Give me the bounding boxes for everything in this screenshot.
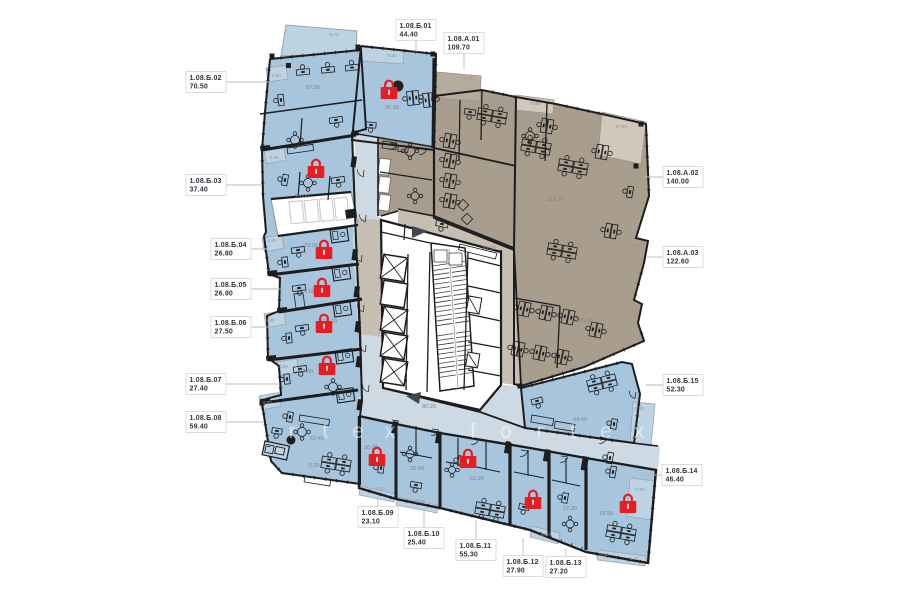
svg-text:1.08.Б.09: 1.08.Б.09 (362, 510, 394, 517)
svg-text:140.00: 140.00 (667, 179, 690, 186)
svg-text:27.00: 27.00 (299, 369, 313, 375)
svg-text:27.50: 27.50 (215, 329, 234, 336)
svg-text:1.08.Б.12: 1.08.Б.12 (507, 559, 539, 566)
svg-text:8.80: 8.80 (530, 101, 540, 107)
svg-text:26.80: 26.80 (215, 251, 234, 258)
svg-text:23.10: 23.10 (362, 519, 381, 526)
svg-text:x: x (385, 420, 396, 443)
svg-text:1.08.Б.15: 1.08.Б.15 (667, 378, 699, 385)
svg-text:t: t (570, 420, 576, 443)
svg-text:x: x (634, 420, 645, 443)
svg-text:1.08.Б.08: 1.08.Б.08 (190, 415, 222, 422)
svg-text:8.70: 8.70 (463, 76, 473, 82)
svg-text:3.10: 3.10 (375, 486, 385, 492)
svg-text:52.30: 52.30 (667, 387, 686, 394)
svg-text:24.60: 24.60 (301, 289, 315, 295)
svg-text:3.80: 3.80 (271, 73, 281, 79)
svg-text:1.08.А.03: 1.08.А.03 (667, 250, 699, 257)
svg-text:25.40: 25.40 (410, 466, 424, 472)
svg-text:3.10: 3.10 (599, 552, 609, 558)
svg-text:1.08.Б.07: 1.08.Б.07 (190, 377, 222, 384)
svg-text:1.08.Б.05: 1.08.Б.05 (215, 282, 247, 289)
svg-text:59.40: 59.40 (190, 424, 209, 431)
svg-text:25.40: 25.40 (408, 540, 427, 547)
svg-text:101.00: 101.00 (444, 180, 461, 186)
svg-text:26.90: 26.90 (215, 291, 234, 298)
svg-text:35.60: 35.60 (385, 105, 399, 111)
svg-text:52.20: 52.20 (470, 476, 484, 482)
svg-text:8.30: 8.30 (628, 313, 638, 319)
svg-text:3.10: 3.10 (540, 532, 550, 538)
svg-text:f: f (470, 420, 476, 443)
svg-text:3.80: 3.80 (278, 364, 288, 370)
svg-text:o: o (252, 420, 264, 443)
svg-text:57.00: 57.00 (306, 85, 320, 91)
svg-text:1.08.Б.14: 1.08.Б.14 (666, 468, 698, 475)
svg-text:1.08.Б.02: 1.08.Б.02 (190, 75, 222, 82)
svg-text:3.80: 3.80 (265, 318, 275, 324)
svg-text:r: r (537, 420, 544, 443)
svg-text:46.40: 46.40 (666, 477, 685, 484)
svg-text:52.40: 52.40 (310, 436, 324, 442)
svg-text:27.90: 27.90 (507, 568, 526, 575)
svg-text:55.30: 55.30 (460, 552, 479, 559)
svg-text:9.70: 9.70 (329, 32, 339, 38)
svg-text:113.30: 113.30 (547, 197, 564, 203)
svg-text:27.20: 27.20 (550, 569, 569, 576)
svg-text:1.08.А.02: 1.08.А.02 (667, 170, 699, 177)
svg-text:1.08.Б.04: 1.08.Б.04 (215, 242, 247, 249)
svg-text:3.80: 3.80 (262, 400, 272, 406)
svg-text:25.00: 25.00 (295, 194, 309, 200)
svg-text:3.10: 3.10 (415, 499, 425, 505)
svg-text:1.08.Б.03: 1.08.Б.03 (190, 178, 222, 185)
svg-text:1.08.Б.01: 1.08.Б.01 (400, 23, 432, 30)
svg-text:1.08.Б.11: 1.08.Б.11 (460, 543, 492, 550)
svg-text:e: e (600, 420, 612, 443)
svg-text:106.00: 106.00 (575, 318, 592, 324)
svg-text:27.40: 27.40 (190, 386, 209, 393)
svg-text:43.20: 43.20 (482, 246, 496, 252)
svg-text:3.80: 3.80 (269, 155, 279, 161)
svg-text:27.20: 27.20 (563, 506, 577, 512)
svg-text:e: e (352, 420, 364, 443)
svg-text:109.70: 109.70 (448, 45, 471, 52)
svg-text:44.40: 44.40 (400, 32, 419, 39)
svg-text:44.00: 44.00 (573, 417, 587, 423)
svg-text:37.40: 37.40 (190, 187, 209, 194)
svg-text:8.30: 8.30 (632, 243, 642, 249)
svg-text:r: r (289, 420, 296, 443)
svg-text:1.08.Б.10: 1.08.Б.10 (408, 531, 440, 538)
svg-text:3.80: 3.80 (267, 238, 277, 244)
svg-text:7.90: 7.90 (635, 487, 645, 493)
svg-text:122.60: 122.60 (667, 259, 690, 266)
svg-text:3.20: 3.20 (309, 463, 320, 469)
svg-text:1.08.Б.06: 1.08.Б.06 (215, 320, 247, 327)
svg-text:8.80: 8.80 (387, 53, 397, 59)
svg-text:17.90: 17.90 (615, 124, 627, 130)
svg-text:8.30: 8.30 (634, 406, 644, 412)
svg-text:5.00: 5.00 (629, 556, 639, 562)
svg-text:1.08.Б.13: 1.08.Б.13 (550, 560, 582, 567)
svg-text:80.20: 80.20 (422, 404, 436, 410)
svg-text:o: o (500, 420, 512, 443)
svg-text:70.50: 70.50 (190, 84, 209, 91)
svg-text:1.08.А.01: 1.08.А.01 (448, 36, 480, 43)
svg-text:33.50: 33.50 (599, 511, 613, 517)
